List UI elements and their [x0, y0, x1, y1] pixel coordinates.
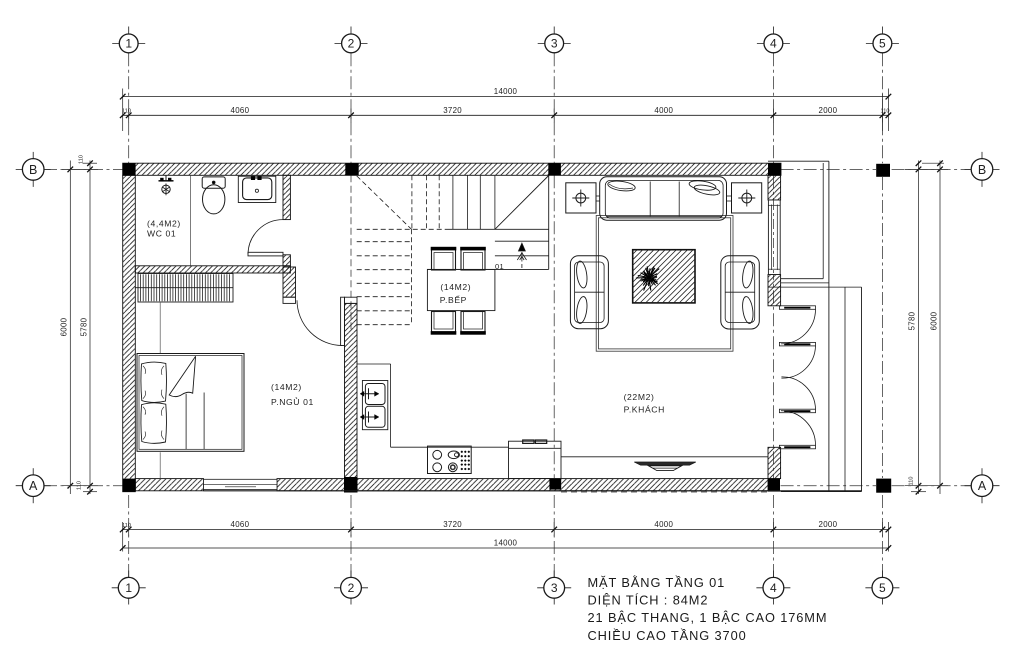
- svg-text:A: A: [29, 479, 38, 493]
- svg-text:3720: 3720: [443, 520, 462, 529]
- svg-text:4: 4: [770, 581, 777, 595]
- svg-text:(4,4M2): (4,4M2): [147, 219, 181, 229]
- svg-text:14000: 14000: [494, 87, 518, 96]
- svg-text:5780: 5780: [80, 317, 89, 336]
- svg-text:01: 01: [495, 262, 504, 271]
- svg-text:110: 110: [881, 109, 890, 115]
- svg-text:DIỆN TÍCH : 84M2: DIỆN TÍCH : 84M2: [588, 593, 709, 608]
- svg-text:110: 110: [79, 155, 85, 164]
- svg-text:1: 1: [125, 581, 132, 595]
- svg-text:3: 3: [551, 37, 558, 51]
- svg-text:4060: 4060: [231, 520, 250, 529]
- svg-text:4060: 4060: [231, 106, 250, 115]
- svg-text:3720: 3720: [443, 106, 462, 115]
- svg-text:1: 1: [125, 37, 132, 51]
- svg-text:3: 3: [551, 581, 558, 595]
- svg-text:6000: 6000: [930, 311, 939, 330]
- svg-text:(22M2): (22M2): [624, 392, 655, 402]
- svg-text:B: B: [978, 163, 986, 177]
- svg-text:CHIỀU CAO TẦNG 3700: CHIỀU CAO TẦNG 3700: [588, 628, 747, 643]
- svg-text:110: 110: [909, 477, 915, 486]
- svg-text:5: 5: [879, 37, 886, 51]
- svg-text:2000: 2000: [819, 106, 838, 115]
- svg-text:P.KHÁCH: P.KHÁCH: [624, 405, 665, 415]
- svg-text:5780: 5780: [908, 311, 917, 330]
- svg-text:B: B: [29, 163, 37, 177]
- svg-text:5: 5: [879, 581, 886, 595]
- svg-text:(14M2): (14M2): [440, 282, 471, 292]
- svg-text:110: 110: [122, 523, 131, 529]
- svg-text:P.NGỦ 01: P.NGỦ 01: [271, 396, 314, 407]
- svg-text:WC 01: WC 01: [147, 229, 176, 239]
- svg-text:P.BẾP: P.BẾP: [440, 295, 467, 305]
- svg-text:(14M2): (14M2): [271, 382, 302, 392]
- svg-text:2: 2: [348, 37, 355, 51]
- svg-text:MẶT BẰNG TẦNG 01: MẶT BẰNG TẦNG 01: [588, 575, 726, 590]
- svg-text:4000: 4000: [654, 106, 673, 115]
- svg-text:2000: 2000: [819, 520, 838, 529]
- svg-text:2: 2: [348, 581, 355, 595]
- svg-text:6000: 6000: [60, 317, 69, 336]
- svg-text:21 BẬC THANG, 1 BẬC CAO 176MM: 21 BẬC THANG, 1 BẬC CAO 176MM: [588, 610, 828, 625]
- svg-text:4000: 4000: [654, 520, 673, 529]
- svg-text:4: 4: [770, 37, 777, 51]
- svg-text:14000: 14000: [494, 538, 518, 547]
- svg-text:A: A: [978, 479, 987, 493]
- svg-text:110: 110: [122, 109, 131, 115]
